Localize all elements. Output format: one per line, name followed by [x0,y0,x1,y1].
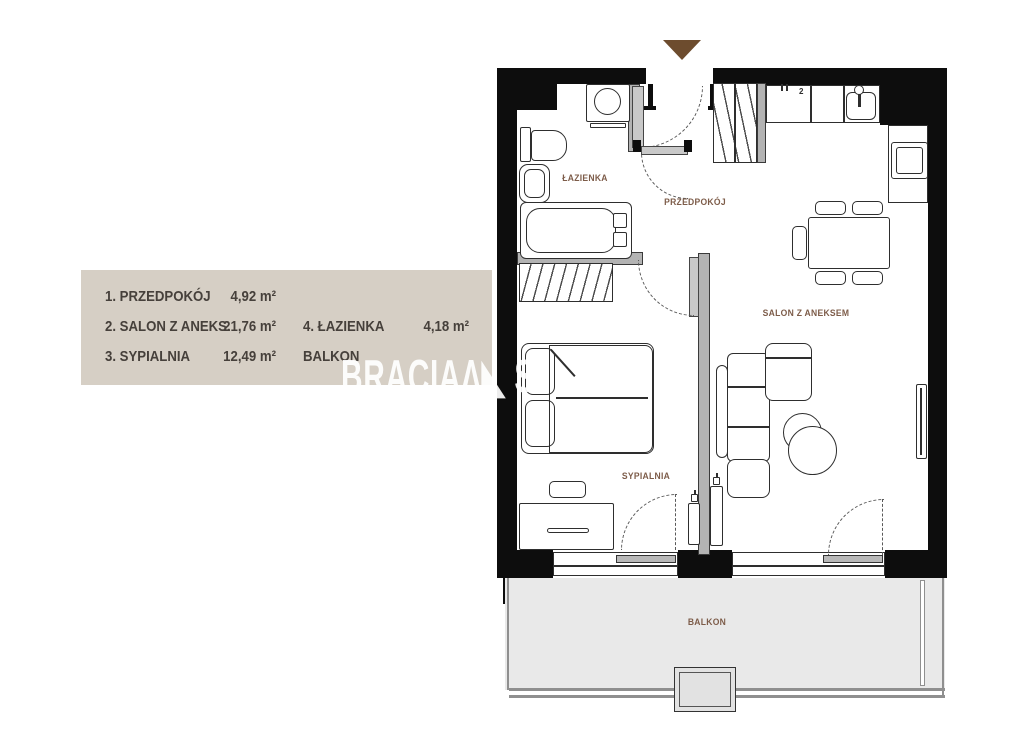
watermark-partial-text: S [514,350,535,402]
radiator-living [710,486,723,546]
wall-top-left-band [555,68,646,84]
legend-row-2: 2. SALON Z ANEKS. 21,76 m² 4. ŁAZIENKA 4… [81,313,492,343]
bedroom-dresser-handle [547,528,589,533]
bathtub-faucet-upper [613,213,627,228]
room-label-hallway: PRZEDPOKÓJ [657,197,733,207]
brand-logo-icon: Λ◣ [461,350,505,402]
radiator-living-valve [713,477,720,485]
legend-room-3-name: 3. SYPIALNIA [105,348,190,365]
bedroom-door-swing-arc [638,260,694,316]
wall-top-left-corner [497,68,557,110]
legend-room-2-area: 21,76 m² [199,318,276,335]
wall-bottom-right-corner [885,550,947,578]
room-label-living-room: SALON Z ANEKSEM [759,308,854,318]
bathroom-door-swing-arc [641,152,688,199]
dining-chair-top-1 [815,201,846,215]
bathroom-door-jamb-right [684,140,692,152]
wall-radiator-living [916,384,927,459]
balcony-door-living-leaf [882,499,884,555]
sofa-cushion [727,459,770,498]
sofa-seam-1 [728,386,769,388]
legend-room-3-area: 12,49 m² [199,348,276,365]
washing-machine-tray [590,123,626,128]
dining-chair-top-2 [852,201,883,215]
sofa-chaise-seam [766,357,811,359]
kitchen-counter-divider-2 [843,86,845,122]
entry-closet-divider [734,84,736,162]
room-label-balcony: BALKON [669,617,745,627]
kitchen-faucet-stem [858,94,861,107]
balcony-divider [920,580,925,686]
legend-room-4-area: 4,18 m² [400,318,469,335]
fridge-inner [896,147,923,174]
dining-chair-bottom-1 [815,271,846,285]
radiator-living-pin [716,473,718,478]
entrance-arrow-icon [663,40,701,60]
toilet-bowl [531,130,567,161]
washing-machine-drum-icon [594,88,621,115]
toilet-tank [520,127,531,162]
sofa-chaise [765,343,812,401]
kitchen-hob-marker: 2 [799,87,803,96]
bathroom-sink-basin [524,169,545,198]
watermark-brand-text: BRACIA [341,350,461,402]
legend-room-1-area: 4,92 m² [199,288,276,305]
kitchen-counter-divider-1 [810,86,812,122]
dining-chair-left [792,226,807,260]
balcony-door-living-sill [732,566,885,576]
room-label-bedroom: SYPIALNIA [608,471,684,481]
kitchen-counter-tick-2 [786,84,788,91]
bathtub-faucet-lower [613,232,627,247]
kitchen-counter-tick-1 [781,84,783,91]
balcony-door-living-panel [823,555,883,563]
room-label-bathroom: ŁAZIENKA [552,173,619,183]
sofa-seam-2 [728,426,769,428]
bed-blanket-crease [556,397,648,399]
sofa-body [727,353,770,462]
closet-wall-right [757,83,766,163]
kitchen-sink [846,92,876,120]
bathtub-basin [526,208,616,253]
coffee-table-large [788,426,837,475]
balcony-door-bedroom-leaf [675,494,677,550]
wall-right [928,125,947,555]
legend-room-1-name: 1. PRZEDPOKÓJ [105,288,211,305]
bathroom-door-jamb-left [633,140,641,152]
balcony-edge-left [507,578,509,690]
watermark: BRACIAΛ◣ S [341,349,535,403]
wall-radiator-living-line [920,388,922,455]
balcony-door-bedroom-sill [553,566,678,576]
radiator-bedroom-valve [691,494,698,502]
dining-table [808,217,890,269]
balcony-door-bedroom-swing-arc [621,494,677,550]
bedroom-tv-unit [549,481,586,498]
balcony-edge-right [942,578,944,695]
legend-room-4-name: 4. ŁAZIENKA [303,318,384,335]
bedroom-dresser [519,503,614,550]
radiator-bedroom-pin [694,490,696,495]
balcony-door-bedroom-panel [616,555,676,563]
balcony-door-living-swing-arc [828,499,884,555]
wall-bottom-left [497,550,553,578]
wall-top-right-corner [880,68,947,125]
bed-blanket [549,345,653,453]
radiator-bedroom [688,503,700,545]
dining-chair-bottom-2 [852,271,883,285]
balcony-table-inner [679,672,731,707]
entrance-door-swing-arc [641,86,703,148]
bedroom-wardrobe [519,263,613,302]
wall-left [497,68,517,555]
legend-row-1: 1. PRZEDPOKÓJ 4,92 m² [81,283,492,313]
